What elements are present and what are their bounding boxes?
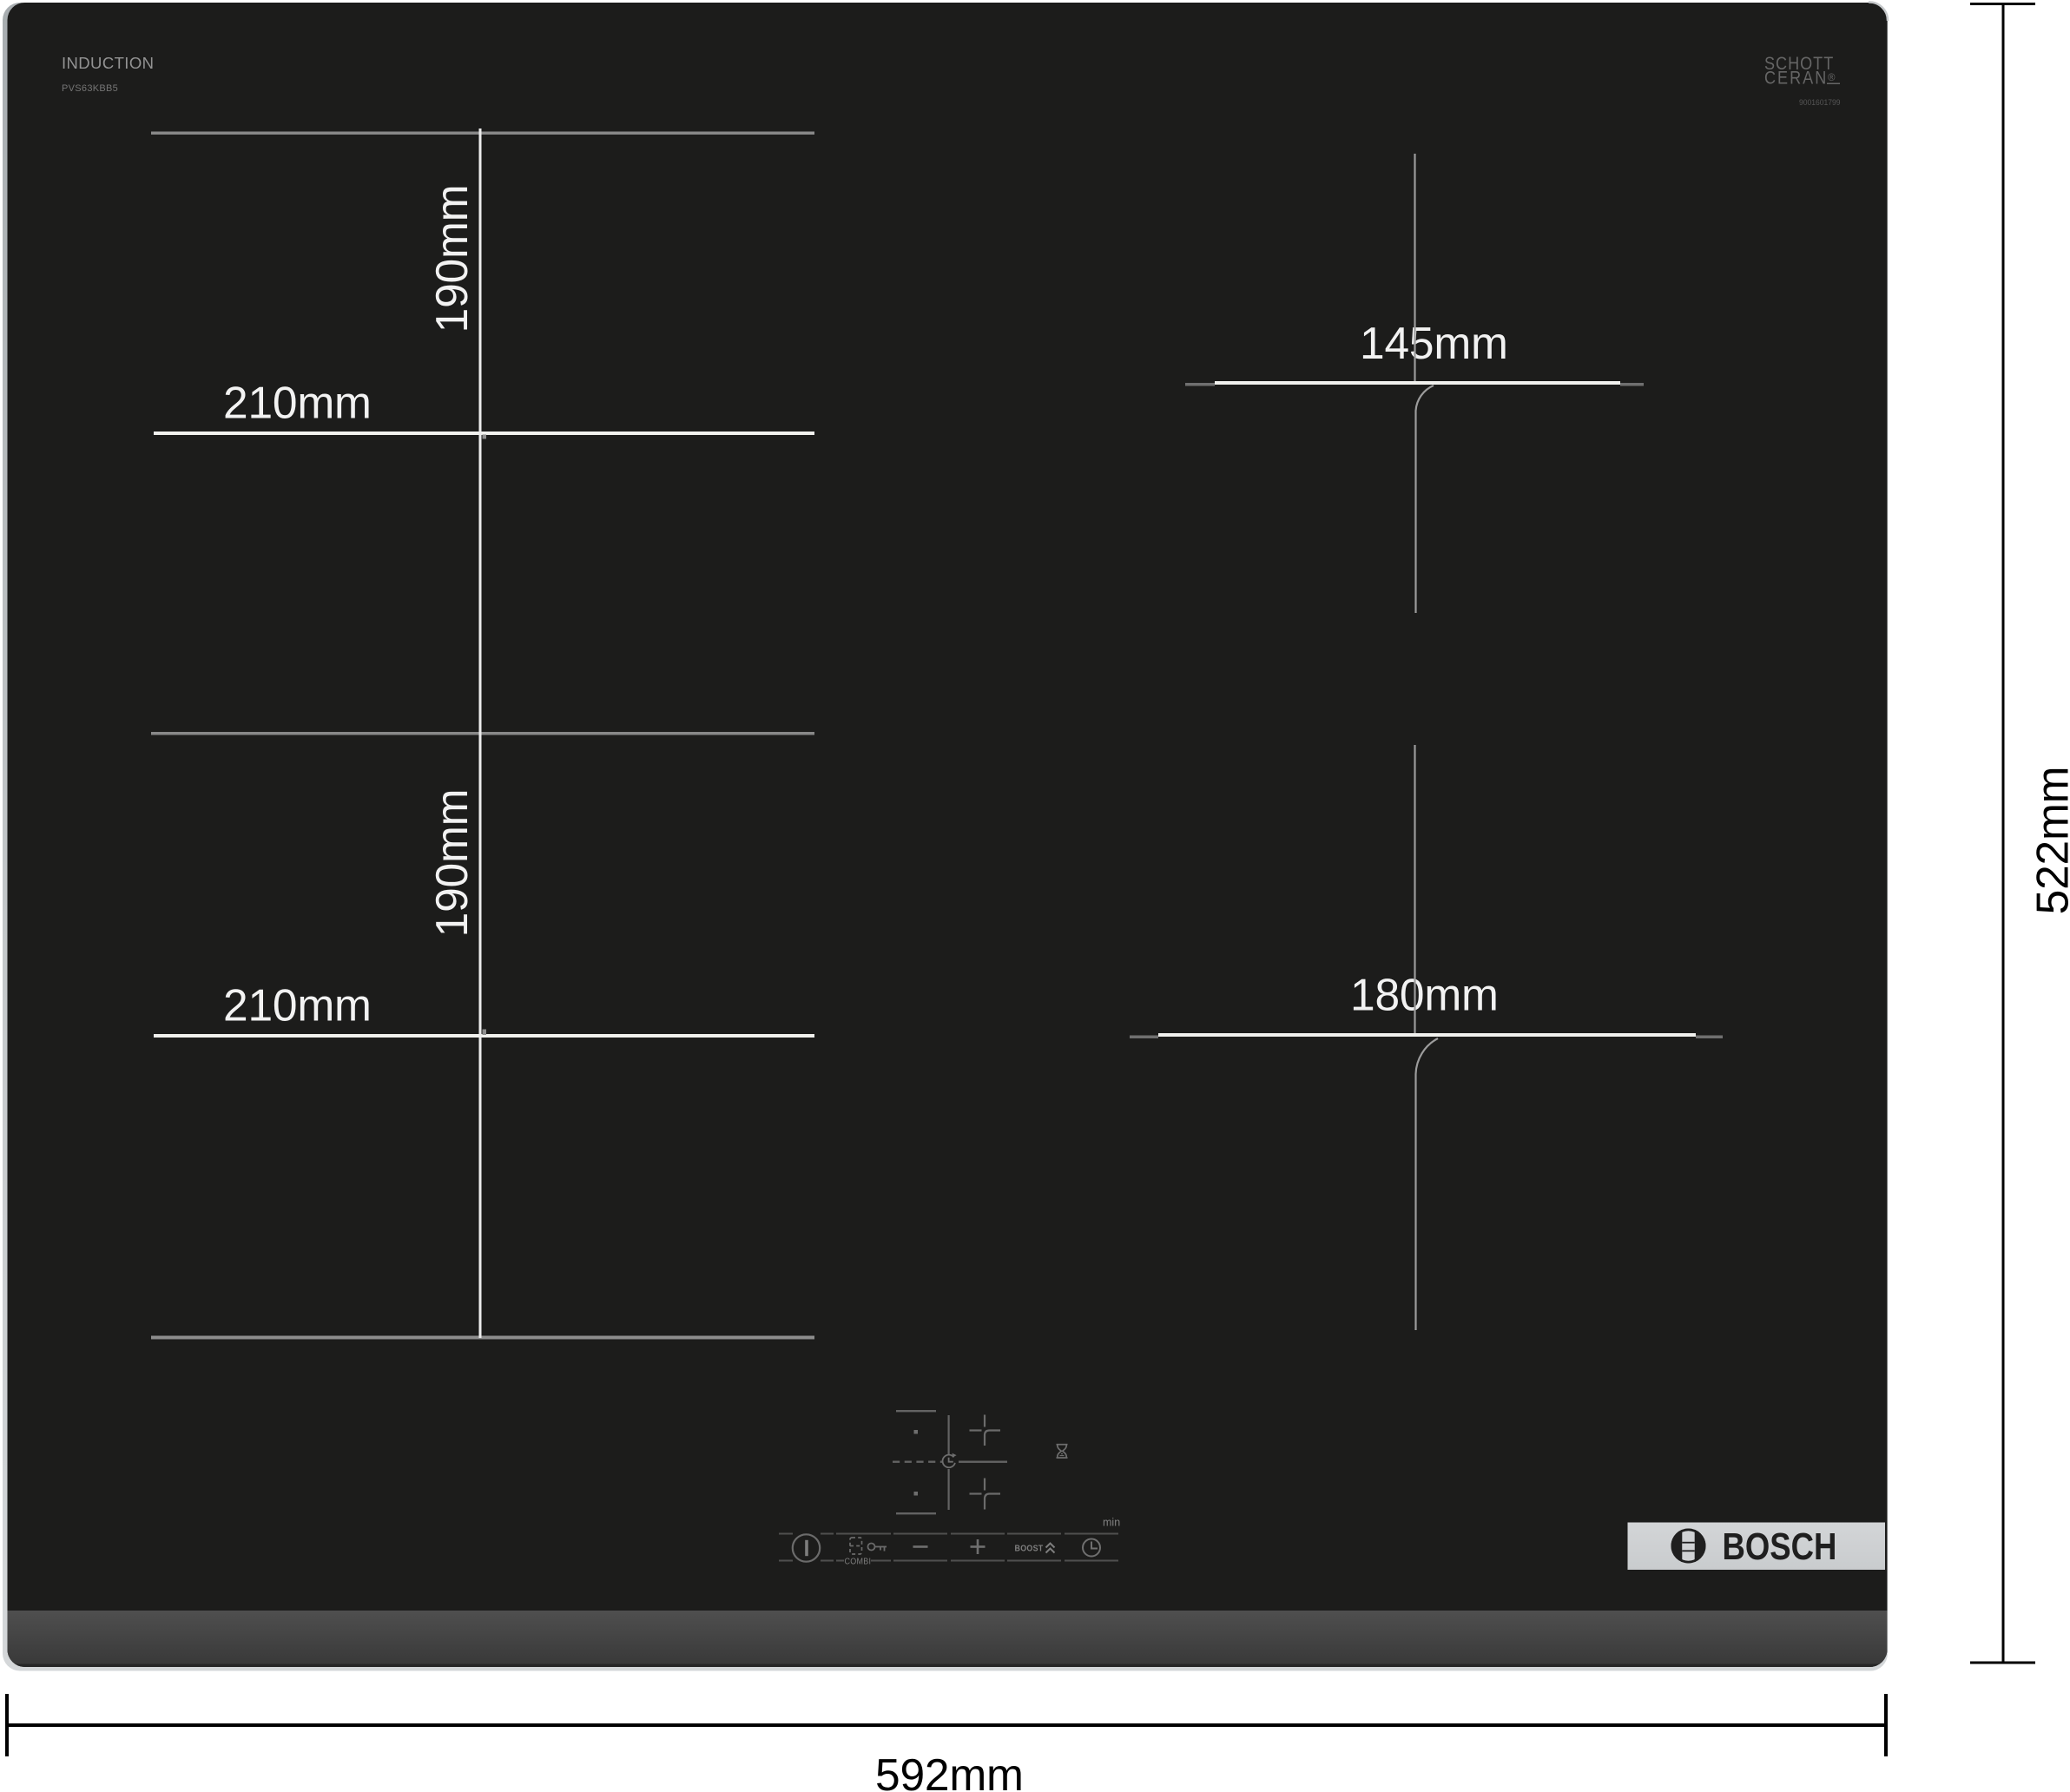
svg-text:min: min [1103,1517,1120,1529]
svg-text:210mm: 210mm [223,980,372,1031]
svg-text:BOSCH: BOSCH [1723,1525,1837,1568]
svg-text:190mm: 190mm [426,789,477,938]
svg-text:592mm: 592mm [875,1749,1024,1792]
svg-text:522mm: 522mm [2027,767,2070,915]
svg-text:COMBI: COMBI [845,1557,872,1567]
svg-text:190mm: 190mm [426,185,477,333]
svg-text:BOOST: BOOST [1015,1544,1044,1554]
svg-text:210mm: 210mm [223,378,372,428]
svg-text:145mm: 145mm [1360,318,1508,368]
svg-text:INDUCTION: INDUCTION [62,54,154,72]
svg-text:9001601799: 9001601799 [1799,98,1840,108]
svg-text:CERAN: CERAN [1764,68,1828,89]
svg-text:®: ® [1828,73,1836,83]
svg-text:180mm: 180mm [1350,970,1499,1020]
svg-text:PVS63KBB5: PVS63KBB5 [62,83,118,94]
